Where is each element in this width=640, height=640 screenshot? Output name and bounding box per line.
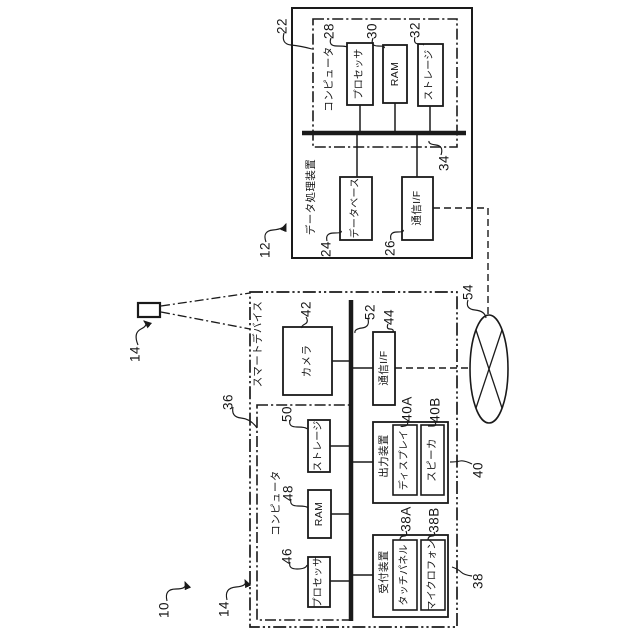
touch-panel-label: タッチパネル	[400, 544, 410, 605]
ref-52: 52	[363, 304, 377, 320]
ref-28: 28	[322, 23, 336, 39]
ref-54: 54	[461, 284, 475, 300]
ref-36: 36	[221, 394, 235, 410]
projection-ray	[161, 312, 250, 329]
camera-label: カメラ	[302, 345, 313, 378]
ref-40B: 40B	[428, 397, 442, 423]
reception-device-label: 受付装置	[379, 550, 390, 594]
projection-ray	[161, 293, 250, 306]
smart-processor-label: プロセッサ	[314, 557, 324, 608]
ref-26: 26	[383, 240, 397, 256]
dpd-storage-label: ストレージ	[425, 50, 435, 101]
ref-14: 14	[217, 601, 231, 617]
ref-10: 10	[157, 602, 171, 618]
smart-computer-label: コンピュータ	[271, 470, 282, 535]
ref-12: 12	[258, 242, 272, 258]
dpd-ram-label: RAM	[390, 62, 401, 87]
speaker-label: スピーカ	[427, 438, 438, 482]
smart-device-icon	[138, 303, 160, 317]
dpd-processor-label: プロセッサ	[355, 49, 365, 100]
ref-22: 22	[275, 18, 289, 34]
ref-30: 30	[365, 23, 379, 39]
dpd-comm-if-label: 通信I/F	[412, 190, 423, 225]
ref-38: 38	[471, 573, 485, 589]
ref-44: 44	[382, 309, 396, 325]
microphone-label: マイクロフォン	[428, 539, 438, 610]
ref-42: 42	[299, 301, 313, 317]
ref-40A: 40A	[400, 396, 414, 422]
dpd-label: データ処理装置	[306, 159, 317, 235]
ref-38B: 38B	[427, 507, 441, 533]
ref-32: 32	[408, 22, 422, 38]
ref-46: 46	[280, 548, 294, 564]
smart-ram-label: RAM	[314, 502, 325, 527]
ref-34: 34	[437, 155, 451, 171]
smart-device-label: スマートデバイス	[253, 301, 264, 388]
ref-50: 50	[280, 406, 294, 422]
ref-24: 24	[319, 241, 333, 257]
output-device-label: 出力装置	[379, 434, 390, 478]
ref-40: 40	[471, 462, 485, 478]
dpd-computer-label: コンピュータ	[324, 46, 335, 111]
diagram-shapes	[0, 0, 640, 640]
ref-38A: 38A	[399, 506, 413, 532]
ref-14-icon: 14	[128, 346, 142, 362]
smart-comm-if-label: 通信I/F	[379, 350, 390, 385]
ref-48: 48	[281, 485, 295, 501]
smart-storage-label: ストレージ	[314, 421, 324, 472]
patent-figure: データ処理装置 コンピュータ プロセッサ RAM ストレージ データベース 通信…	[0, 0, 640, 640]
display-label: ディスプレイ	[400, 430, 410, 491]
dpd-database-label: データベース	[351, 178, 361, 239]
